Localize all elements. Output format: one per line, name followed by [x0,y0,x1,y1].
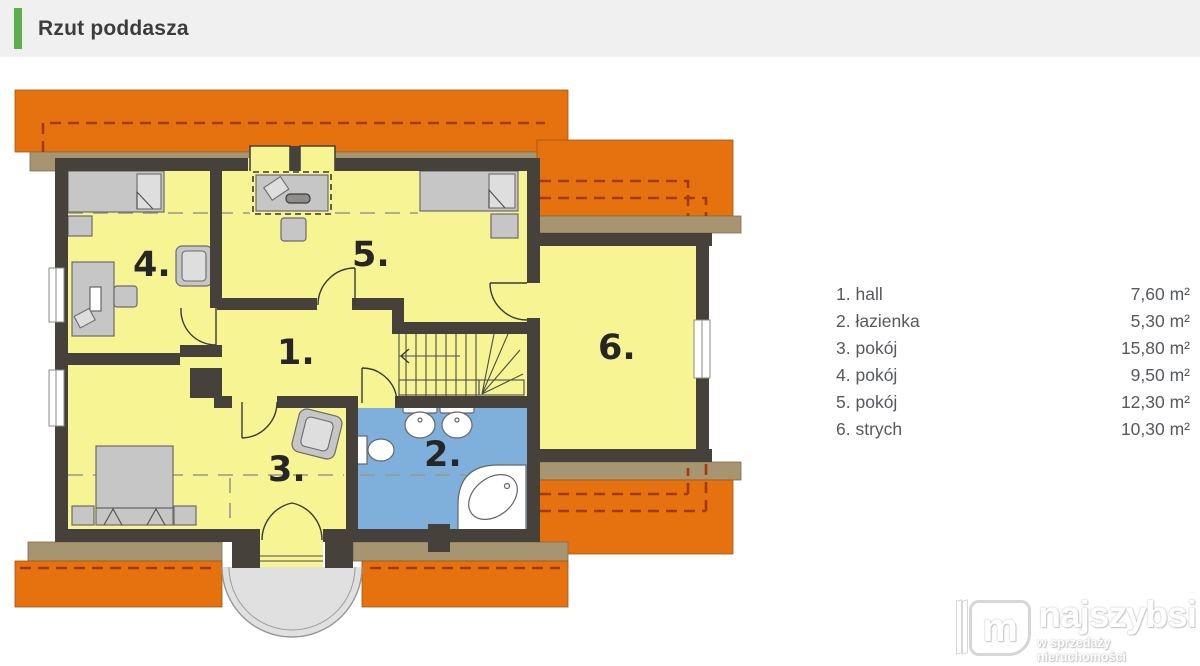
label-room4: 4. [133,245,171,285]
corner-bathtub [458,465,526,530]
watermark-tagline: w sprzedaży nieruchomości [1037,636,1196,664]
nightstand-room4 [68,216,92,236]
room-area: 10,30 m² [1121,416,1190,443]
watermark-brand: najszybsi [1038,596,1196,635]
logo-pages-icon [956,600,969,652]
label-room5: 5. [352,235,390,275]
chimney-hall [190,368,222,398]
desk-chair-room4 [114,286,137,307]
nightstand-right [174,506,196,525]
label-room3: 3. [268,450,306,490]
label-bathroom: 2. [424,435,462,475]
legend-row: 6. strych 10,30 m² [836,416,1190,443]
legend-row: 3. pokój 15,80 m² [836,335,1190,362]
chair-room5 [281,218,306,241]
room-area: 9,50 m² [1131,362,1190,389]
nightstand-room5 [491,214,518,238]
nightstand-left [72,506,94,525]
chimney-bathroom [428,524,450,552]
monitor [90,287,101,311]
legend-row: 2. łazienka 5,30 m² [836,308,1190,335]
page: Rzut poddasza [0,0,1200,666]
room-area: 12,30 m² [1121,389,1190,416]
room-area: 5,30 m² [1131,308,1190,335]
room-legend: 1. hall 7,60 m² 2. łazienka 5,30 m² 3. p… [836,281,1190,443]
room-area: 15,80 m² [1121,335,1190,362]
double-bed-room3 [96,446,173,525]
logo-m-icon: m [969,600,1031,656]
toilet [356,436,394,464]
label-hall: 1. [277,333,315,373]
legend-row: 1. hall 7,60 m² [836,281,1190,308]
room-area: 7,60 m² [1131,281,1190,308]
watermark-logo: m najszybsi w sprzedaży nieruchomości [956,596,1196,664]
legend-row: 5. pokój 12,30 m² [836,389,1190,416]
label-attic: 6. [598,328,636,368]
legend-row: 4. pokój 9,50 m² [836,362,1190,389]
